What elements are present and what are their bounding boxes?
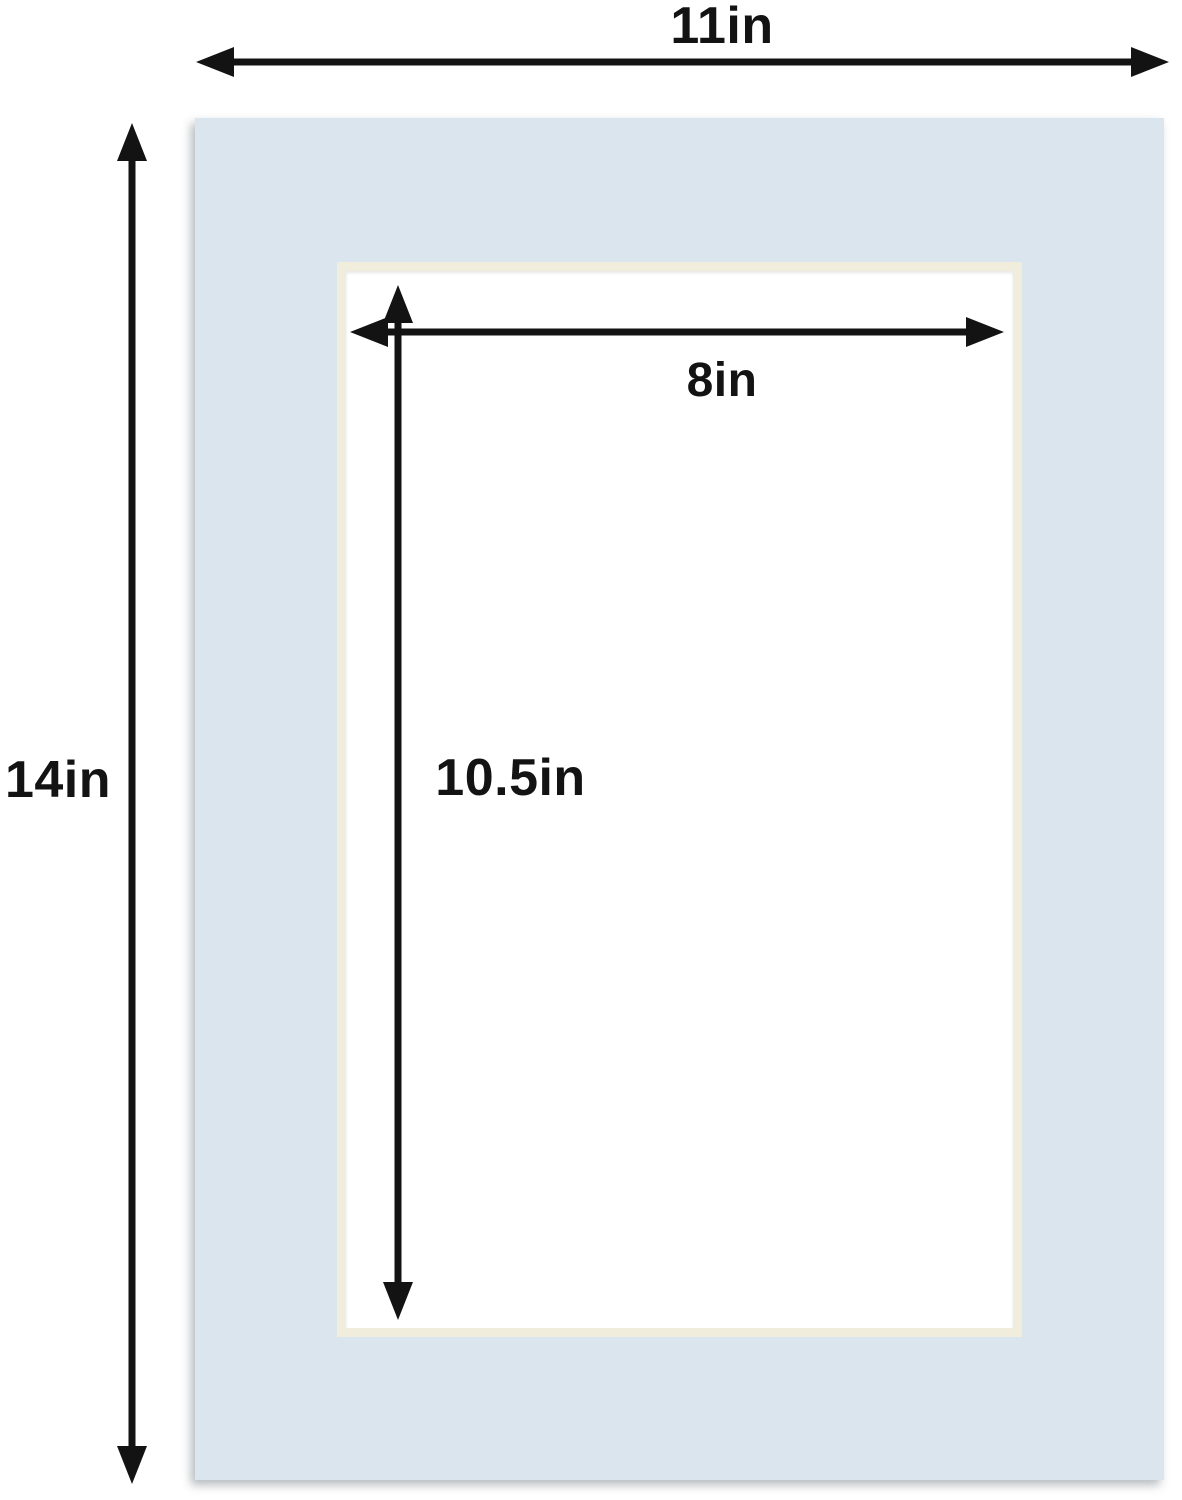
overall-height-label: 14in [0,754,124,806]
opening-height-label: 10.5in [423,752,598,804]
opening-width-label: 8in [642,356,802,406]
mat-dimension-diagram: 11in 14in 8in 10.5in [0,0,1182,1500]
mat-board [195,118,1164,1480]
overall-width-label: 11in [622,0,822,52]
